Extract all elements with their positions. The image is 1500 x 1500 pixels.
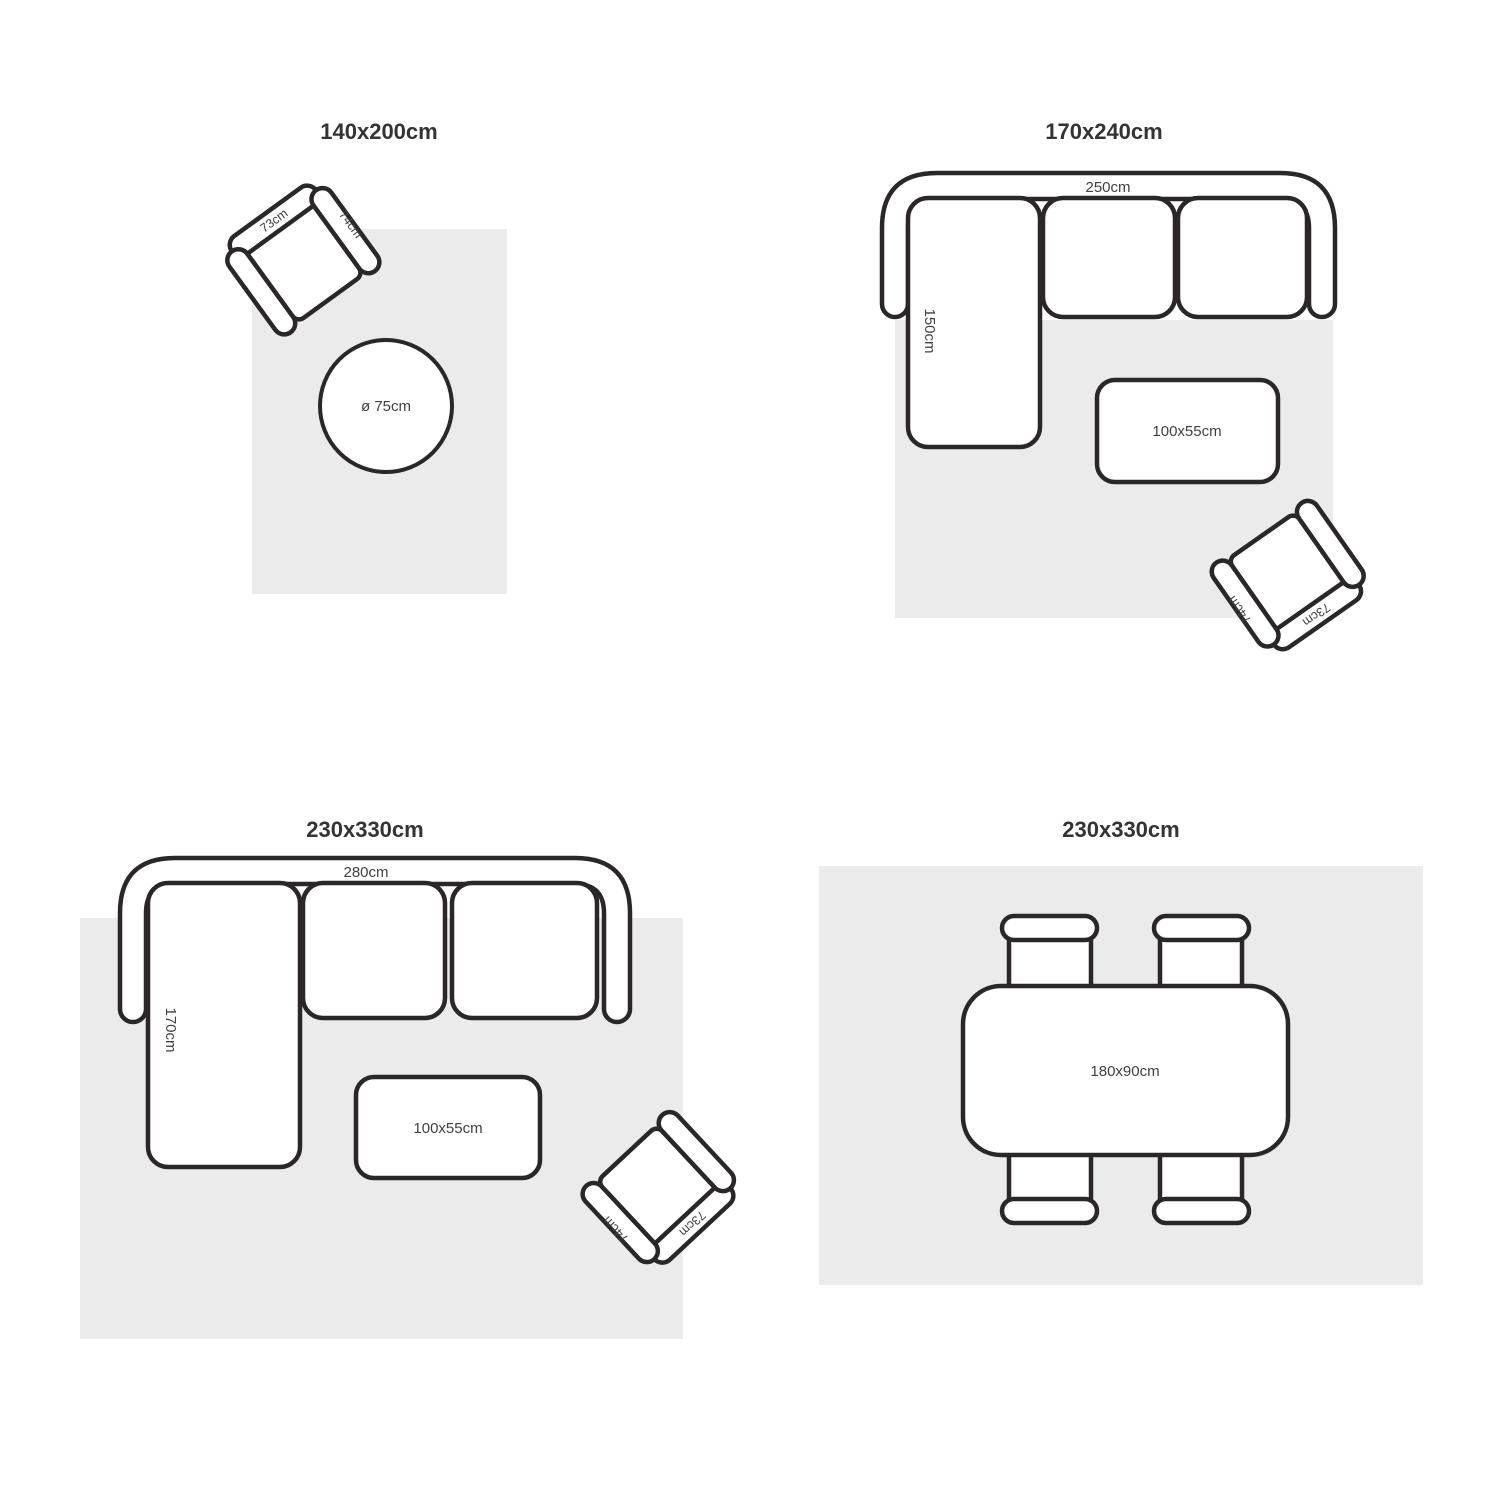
panel-230x330-sofa: 230x330cm 280cm 170cm 100x55cm 73cm 74cm [80, 817, 746, 1339]
dining-chair-bottom-left [1002, 1151, 1097, 1223]
dining-table-dimension: 180x90cm [1090, 1063, 1159, 1080]
panel-140x200: 140x200cm 73cm 74cm ø 75cm [217, 119, 507, 594]
coffee-table-dimension: 100x55cm [1152, 423, 1221, 440]
panel-title: 230x330cm [306, 817, 423, 842]
dining-chair-back [1154, 1199, 1249, 1223]
rug-size-guide-canvas: 140x200cm 73cm 74cm ø 75cm 170x240cm 250… [0, 0, 1500, 1500]
coffee-table-dimension: 100x55cm [413, 1120, 482, 1137]
rug-size-guide: 140x200cm 73cm 74cm ø 75cm 170x240cm 250… [0, 0, 1500, 1500]
dining-chair-top-right [1154, 916, 1249, 990]
sofa-cushion-right [1178, 198, 1307, 317]
panel-title: 170x240cm [1045, 119, 1162, 144]
panel-230x330-dining: 230x330cm 180x90cm [819, 817, 1423, 1285]
dining-chair-back [1002, 1199, 1097, 1223]
sofa-cushion-middle [1043, 198, 1175, 317]
dining-chair-back [1154, 916, 1249, 940]
panel-170x240: 170x240cm 250cm 150cm 100x55cm 73cm 74cm [882, 119, 1374, 662]
chaise-depth-dimension: 170cm [162, 1007, 179, 1052]
sofa-width-dimension: 250cm [1085, 179, 1130, 196]
pouf-dimension: ø 75cm [361, 398, 411, 415]
sofa-cushion-middle [303, 883, 445, 1018]
dining-chair-back [1002, 916, 1097, 940]
sofa-cushion-right [452, 883, 597, 1018]
dining-chair-top-left [1002, 916, 1097, 990]
dining-chair-bottom-right [1154, 1151, 1249, 1223]
chaise-depth-dimension: 150cm [921, 308, 938, 353]
sofa-width-dimension: 280cm [343, 864, 388, 881]
panel-title: 140x200cm [320, 119, 437, 144]
panel-title: 230x330cm [1062, 817, 1179, 842]
